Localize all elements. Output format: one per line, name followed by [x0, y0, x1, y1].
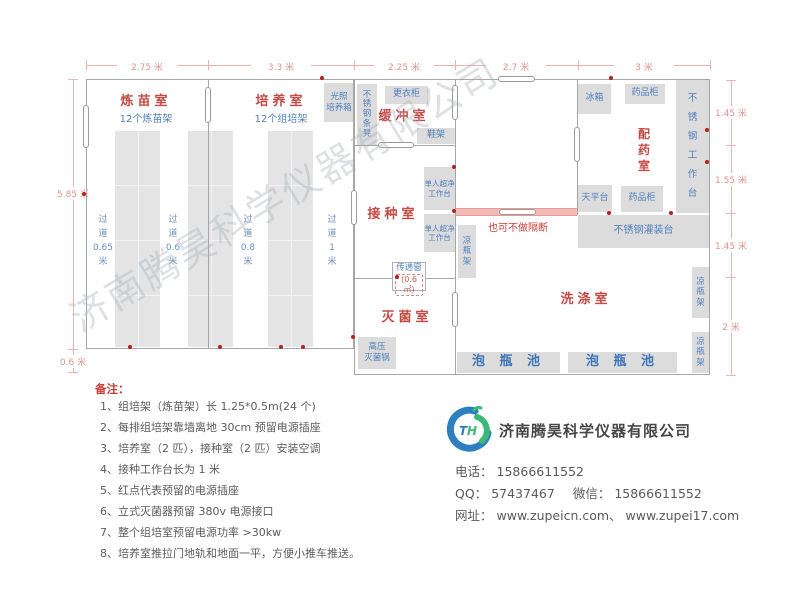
- dim-tick: [726, 213, 736, 214]
- dim-tick: [710, 60, 711, 70]
- room-label-culture: 培养室: [239, 90, 323, 109]
- room-label-inoculation: 接种室: [351, 203, 435, 222]
- wechat-value: 15866611552: [614, 486, 701, 501]
- company-logo: T H: [445, 406, 493, 454]
- dim-label-top: 2.75 米: [117, 60, 177, 73]
- company-website-line: 网址：www.zupeicn.com、 www.zupei17.com: [455, 505, 743, 524]
- note-item: 1、组培架（炼苗架）长 1.25*0.5m(24 个): [100, 398, 316, 414]
- company-name: 济南腾昊科学仪器有限公司: [499, 420, 691, 441]
- aisle-label: 过 道 0.6 米: [160, 214, 186, 270]
- power-outlet-dot: [705, 160, 709, 164]
- dim-label-left: 0.6 米: [51, 355, 95, 368]
- door-dispensing: [574, 127, 580, 162]
- power-outlet-dot: [609, 76, 613, 80]
- room-label-sterilization: 灭菌室: [365, 306, 449, 325]
- note-item: 3、培养室（2 匹），接种室（2 匹）安装空调: [100, 440, 321, 456]
- wall-inoculation-washing: [455, 79, 456, 375]
- svg-text:H: H: [467, 424, 477, 438]
- dim-label-top: 3.3 米: [251, 60, 311, 73]
- power-outlet-dot: [218, 345, 222, 349]
- room-label-washing: 洗涤室: [544, 288, 628, 307]
- door-sterilization-washing: [452, 292, 458, 327]
- dim-tick: [354, 60, 355, 70]
- room-label-dispensing: 配 药 室: [636, 126, 652, 175]
- power-outlet-dot: [705, 128, 709, 132]
- left-dimension-line: [73, 79, 74, 372]
- note-item: 7、整个组培室预留电源功率 >30kw: [100, 524, 281, 540]
- dim-label-right: 1.45 米: [709, 106, 753, 119]
- dim-tick: [68, 79, 78, 80]
- power-outlet-dot: [320, 76, 324, 80]
- dim-label-top: 3 米: [614, 60, 674, 73]
- power-outlet-dot: [452, 209, 456, 213]
- phone-value: 15866611552: [497, 464, 584, 479]
- notes-title: 备注：: [95, 381, 130, 397]
- floor-plan-canvas: 济南腾昊科学仪器有限公司 也可不做隔断 光照 培养箱 不 锈 钢 条 凳 更衣柜…: [0, 0, 800, 600]
- dim-label-right: 1.45 米: [709, 239, 753, 252]
- dim-tick: [86, 60, 87, 70]
- transfer-window-label: 传递窗: [393, 263, 425, 274]
- dim-label-right: 2 米: [709, 320, 753, 333]
- dim-tick: [455, 60, 456, 70]
- door-optional-partition: [499, 209, 536, 215]
- door-culture-inoculation: [351, 190, 357, 225]
- dim-label-top: 2.7 米: [486, 60, 546, 73]
- company-phone-line: 电话：15866611552: [455, 461, 588, 480]
- room-label-buffer: 缓冲室: [362, 105, 446, 124]
- dim-tick: [726, 80, 736, 81]
- dim-tick: [726, 145, 736, 146]
- aisle-label: 过 道 0.65 米: [90, 214, 116, 270]
- website-label: 网址：: [455, 508, 493, 523]
- note-item: 4、接种工作台长为 1 米: [100, 461, 220, 477]
- power-outlet-dot: [279, 345, 283, 349]
- wechat-label: 微信：: [573, 486, 611, 501]
- aisle-label: 过 道 0.8 米: [235, 214, 261, 270]
- room-sublabel-seedling: 12个炼苗架: [104, 110, 188, 125]
- note-item: 8、培养室推拉门地轨和地面一平，方便小推车推送。: [100, 545, 360, 561]
- dim-tick: [578, 60, 579, 70]
- power-outlet-dot: [301, 345, 305, 349]
- qq-label: QQ：: [455, 486, 487, 501]
- door-top-entry: [498, 76, 535, 82]
- note-item: 5、红点代表预留的电源插座: [100, 482, 239, 498]
- transfer-window-area: (0.6㎡): [395, 274, 423, 296]
- dim-tick: [68, 349, 78, 350]
- website-value: www.zupeicn.com、 www.zupei17.com: [497, 508, 740, 523]
- dim-label-right: 1.55 米: [709, 173, 753, 186]
- phone-label: 电话：: [455, 464, 493, 479]
- dim-tick: [726, 277, 736, 278]
- dim-label-top: 2.25 米: [374, 60, 434, 73]
- power-outlet-dot: [128, 345, 132, 349]
- power-outlet-dot: [351, 335, 355, 339]
- door-seedling-entry: [83, 105, 89, 148]
- door-buffer-right: [452, 85, 458, 120]
- door-seedling-culture: [205, 87, 211, 123]
- door-buffer-inoculation: [378, 142, 414, 148]
- dim-tick: [726, 375, 736, 376]
- power-outlet-dot: [395, 275, 399, 279]
- room-sublabel-culture: 12个组培架: [239, 110, 323, 125]
- optional-partition-label: 也可不做隔断: [468, 219, 568, 234]
- note-item: 2、每排组培架靠墙离地 30cm 预留电源插座: [100, 419, 321, 435]
- dim-tick: [208, 60, 209, 70]
- company-qq-line: QQ：57437467微信：15866611552: [455, 483, 706, 502]
- aisle-label: 过 道 1 米: [319, 214, 345, 270]
- power-outlet-dot: [607, 211, 611, 215]
- power-outlet-dot: [669, 211, 673, 215]
- room-label-seedling: 炼苗室: [104, 90, 188, 109]
- note-item: 6、立式灭菌器预留 380v 电源接口: [100, 503, 274, 519]
- dim-tick: [68, 372, 78, 373]
- power-outlet-dot: [452, 165, 456, 169]
- qq-value: 57437467: [491, 486, 555, 501]
- power-outlet-dot: [82, 192, 86, 196]
